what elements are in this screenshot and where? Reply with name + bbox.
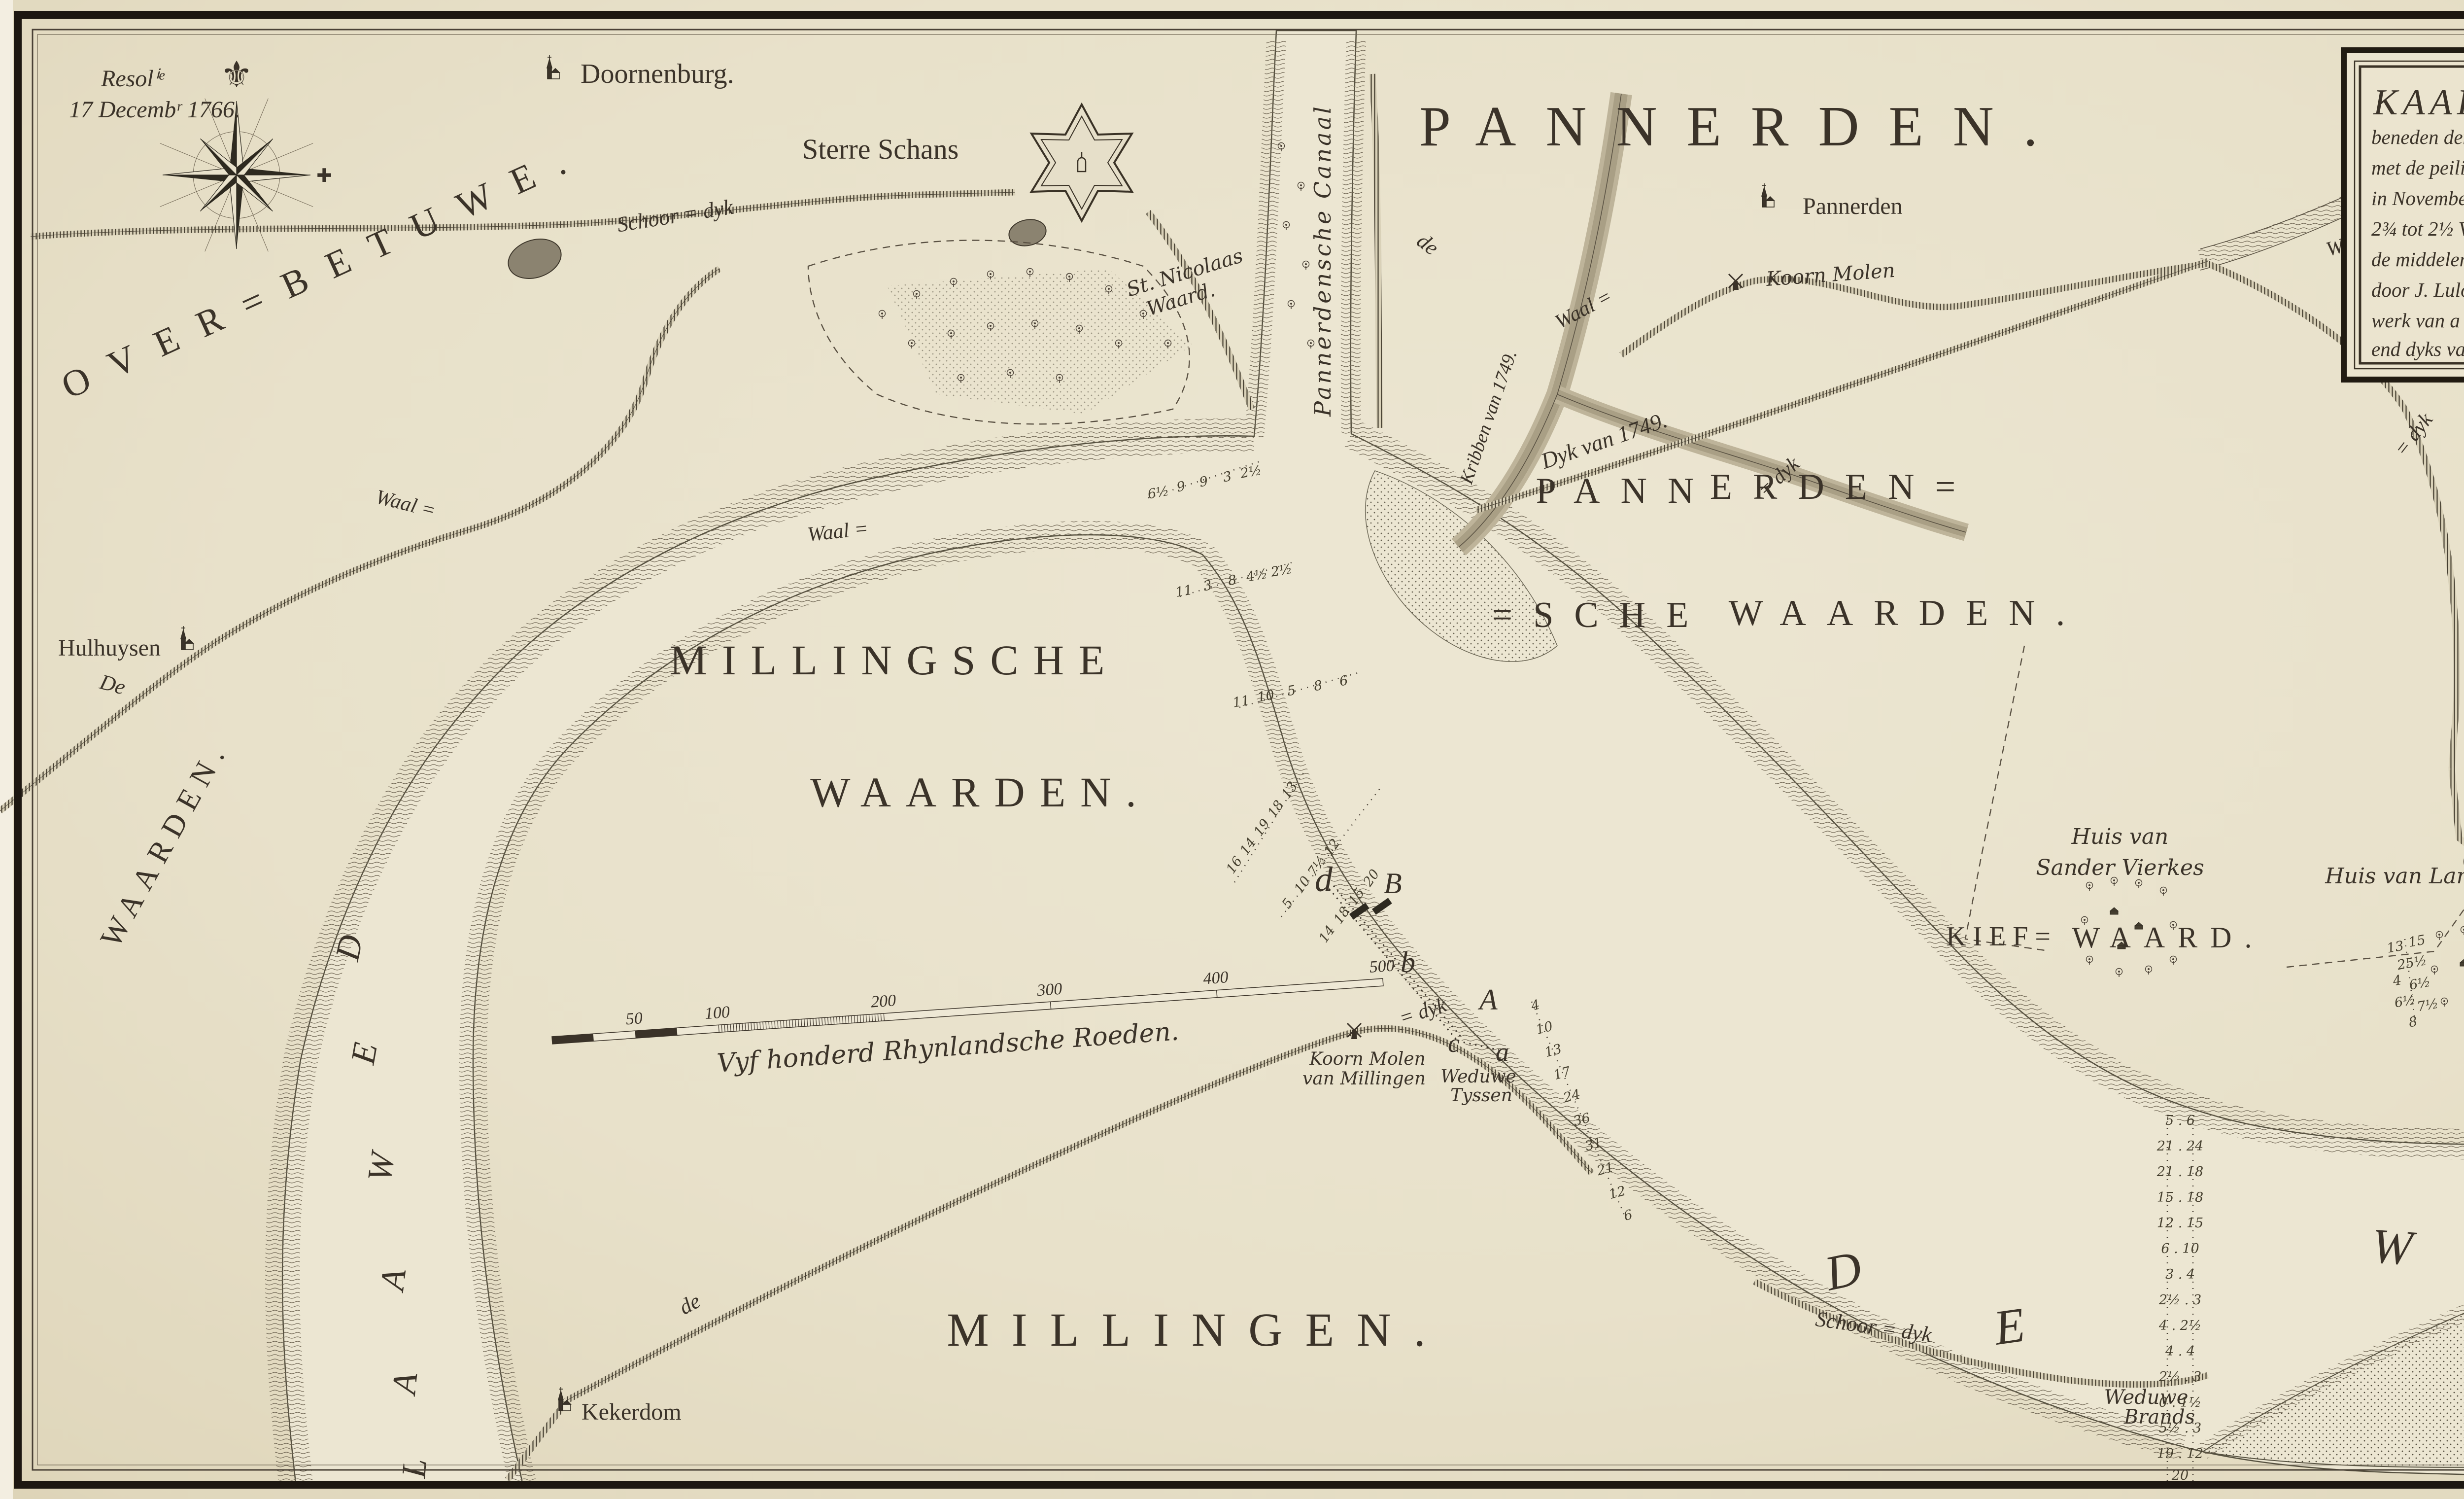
- label-weduwe-tyssen-2: Tyssen: [1450, 1085, 1512, 1106]
- svg-text:19: 19: [1251, 816, 1273, 839]
- label-huis-sander-vierkes-2: Sander Vierkes: [2036, 855, 2204, 880]
- label-kief-2: WAARD.: [2072, 921, 2265, 954]
- cartouche-line2: beneden den Mond van het Pannerdensche C…: [2371, 126, 2464, 148]
- compass-rose: ⚜ ✚: [160, 55, 332, 251]
- svg-text:7½: 7½: [2416, 996, 2439, 1015]
- svg-text:12: 12: [1607, 1183, 1627, 1202]
- label-waarden-west: WAARDEN.: [94, 734, 236, 953]
- label-hulhuysen: Hulhuysen: [58, 635, 161, 661]
- label-koorn-molen-millingen-2: van Millingen: [1302, 1069, 1426, 1089]
- label-huis-lamb-hoet: Huis van Lamb: Hoet: [2325, 864, 2464, 889]
- title-cartouche: KAART van de Rivier de Waal boven en ben…: [2344, 50, 2464, 380]
- svg-text:21 . 24: 21 . 24: [2156, 1139, 2203, 1154]
- svg-text:8: 8: [2407, 1014, 2418, 1031]
- label-schoor-dyk-top: Schoor = dyk: [616, 195, 736, 237]
- marker-b: b: [1401, 946, 1415, 978]
- svg-text:4 . 4: 4 . 4: [2165, 1344, 2195, 1359]
- svg-text:25½: 25½: [2396, 953, 2428, 973]
- svg-text:12 . 15: 12 . 15: [2157, 1216, 2203, 1231]
- label-pannerden-region: PANNERDEN.: [1419, 95, 2067, 158]
- svg-text:16: 16: [1223, 854, 1245, 876]
- cartouche-line7: door J. Lulofs en M. Bolstra, bestaande …: [2371, 279, 2464, 301]
- svg-text:6: 6: [1622, 1207, 1634, 1224]
- fleur-de-lis-icon: ⚜: [220, 55, 253, 96]
- river-waal: [282, 31, 2464, 1483]
- svg-text:11: 11: [1232, 693, 1251, 711]
- pannerden-mill-dyke: [1621, 264, 2208, 355]
- label-koorn-molen-millingen-1: Koorn Molen: [1309, 1049, 1426, 1069]
- pond-betuwe: [503, 233, 566, 285]
- resolution-note-line1: Resolⁱᵉ: [101, 66, 165, 92]
- map-canvas: ⚜ ✚ 50 100 200 300 400 500: [0, 0, 2464, 1499]
- label-kekerdom: Kekerdom: [582, 1399, 682, 1425]
- svg-text:15 . 18: 15 . 18: [2157, 1190, 2203, 1205]
- marker-a: a: [1496, 1037, 1509, 1067]
- label-pannerdensche-1b: ERDEN=: [1710, 467, 1976, 507]
- svg-text:0 . 1½: 0 . 1½: [2159, 1395, 2201, 1410]
- cartouche-line6: de middelen tot redres in December 1766.…: [2371, 248, 2464, 271]
- scale-tick-200: 200: [870, 991, 896, 1011]
- svg-text:4: 4: [2391, 973, 2402, 989]
- sterre-schans-fort: [1031, 105, 1132, 221]
- cartouche-line9: end dyks van c tot d.: [2371, 338, 2464, 360]
- svg-text:19 . 12: 19 . 12: [2157, 1446, 2203, 1462]
- label-millingen: MILLINGEN.: [947, 1303, 1448, 1356]
- scale-tick-400: 400: [1202, 968, 1229, 988]
- church-icon-hulhuysen: [181, 626, 193, 650]
- scale-tick-50: 50: [625, 1009, 643, 1028]
- scale-tick-100: 100: [704, 1003, 730, 1023]
- marker-c: c: [1448, 1028, 1460, 1058]
- label-pannerden-village: Pannerden: [1803, 193, 1903, 219]
- label-kief-1: KIEF=: [1946, 921, 2057, 952]
- scale-tick-300: 300: [1036, 980, 1062, 1000]
- cartouche-line3: met de peilingen door Beyerinck, Bolstra…: [2371, 156, 2464, 179]
- svg-text:14: 14: [1316, 923, 1338, 945]
- label-koorn-molen-pannerden: Koorn Molen: [1765, 259, 1895, 291]
- svg-text:6 . 10: 6 . 10: [2161, 1241, 2199, 1256]
- cross-icon: ✚: [316, 166, 332, 186]
- label-millingsche: MILLINGSCHE: [670, 636, 1120, 684]
- label-de-3: De: [97, 669, 128, 699]
- cartouche-line5: 2¾ tot 2½ Voet aan den Peilpaal te Arnhe…: [2371, 217, 2464, 240]
- svg-text:10: 10: [1291, 873, 1313, 896]
- svg-text:4 . 2½: 4 . 2½: [2158, 1318, 2201, 1333]
- svg-text:5: 5: [1279, 896, 1296, 911]
- label-canal: Pannerdensche Canaal: [1309, 104, 1336, 417]
- church-icon-doornenburg: [547, 55, 559, 79]
- svg-text:2½ . 3: 2½ . 3: [2158, 1369, 2201, 1385]
- marker-A: A: [1477, 983, 1498, 1016]
- label-weduwe-tyssen-1: Weduwe: [1440, 1067, 1516, 1087]
- church-icon-pannerden: [1762, 183, 1774, 207]
- svg-text:2½ . 3: 2½ . 3: [2158, 1292, 2201, 1308]
- svg-text:6½: 6½: [2408, 975, 2431, 993]
- svg-text:15: 15: [2407, 932, 2427, 950]
- label-sterre-schans: Sterre Schans: [802, 133, 958, 165]
- svg-text:5 . 6: 5 . 6: [2165, 1113, 2195, 1128]
- svg-text:14: 14: [1237, 835, 1259, 858]
- label-de-2: de: [675, 1289, 705, 1320]
- svg-text:3 . 4: 3 . 4: [2165, 1267, 2195, 1282]
- scale-tick-500: 500: [1369, 956, 1395, 976]
- map-sheet: ⚜ ✚ 50 100 200 300 400 500: [0, 0, 2464, 1499]
- cartouche-line8: werk van a tot b, in twee kribben A en B…: [2371, 309, 2464, 332]
- svg-text:5½ . 3: 5½ . 3: [2159, 1421, 2201, 1436]
- cartouche-lead: KAART: [2373, 82, 2464, 123]
- label-huis-sander-vierkes-1: Huis van: [2071, 824, 2169, 849]
- svg-text:6½: 6½: [2393, 992, 2417, 1011]
- label-eqdyk-east: = dyk: [2390, 408, 2438, 460]
- river-water: [282, 31, 2464, 1483]
- label-pannerdensche-1a: PANN: [1536, 471, 1715, 511]
- svg-text:18: 18: [1265, 798, 1287, 820]
- canal-east-dyke: [1372, 74, 1380, 428]
- cartouche-line4: in November 1766, gedaan op een Waters-h…: [2371, 187, 2464, 209]
- label-millingsche-waarden: WAARDEN.: [810, 768, 1151, 816]
- label-de-1: de: [1412, 228, 1443, 260]
- resolution-note: Resolⁱᵉ 17 Decembʳ 1766.: [69, 66, 240, 123]
- svg-text:21 . 18: 21 . 18: [2156, 1164, 2203, 1180]
- letter-de-waal-W: W: [2369, 1218, 2418, 1276]
- label-waal-1: Waal =: [374, 486, 438, 523]
- resolution-note-line2: 17 Decembʳ 1766.: [69, 97, 240, 123]
- marker-B: B: [1384, 867, 1402, 900]
- letter-left-waal-L: L: [395, 1457, 434, 1480]
- label-pannerdensche-2b: WAARDEN.: [1729, 593, 2086, 633]
- scale-bar: 50 100 200 300 400 500 Vyf honderd Rhynl…: [550, 956, 1399, 1089]
- svg-text:13: 13: [2386, 938, 2405, 956]
- label-pannerdensche-2a: =SCHE: [1492, 595, 1710, 635]
- svg-text:11: 11: [1174, 582, 1194, 600]
- label-doornenburg: Doornenburg.: [581, 59, 734, 89]
- svg-text:10: 10: [1256, 688, 1275, 705]
